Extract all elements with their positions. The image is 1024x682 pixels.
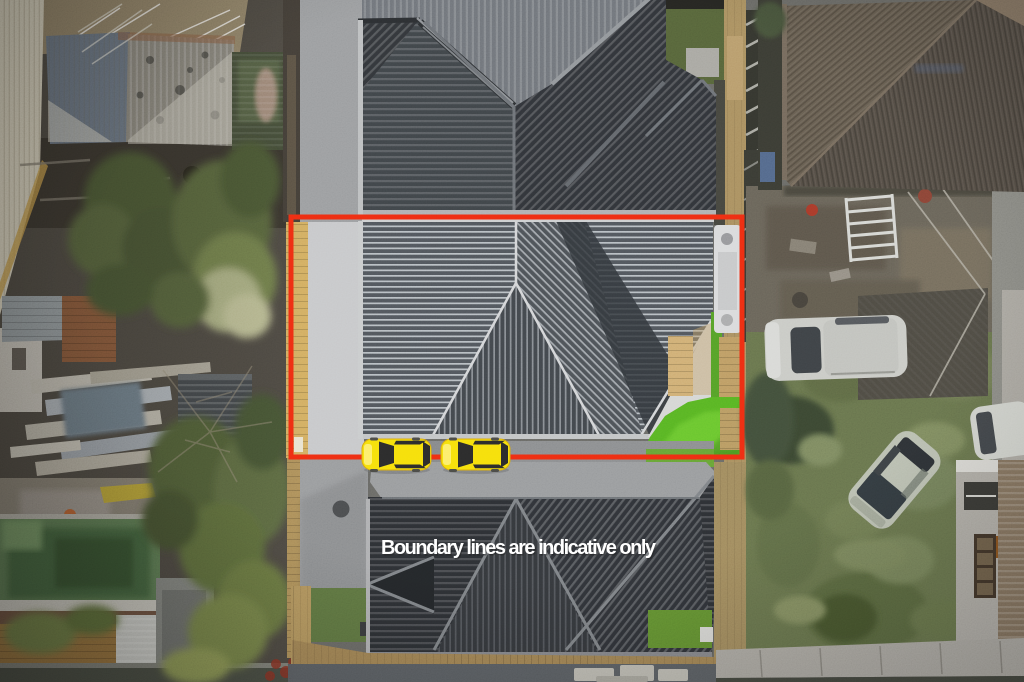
svg-text:Boundary lines are indicative: Boundary lines are indicative only	[381, 537, 657, 559]
